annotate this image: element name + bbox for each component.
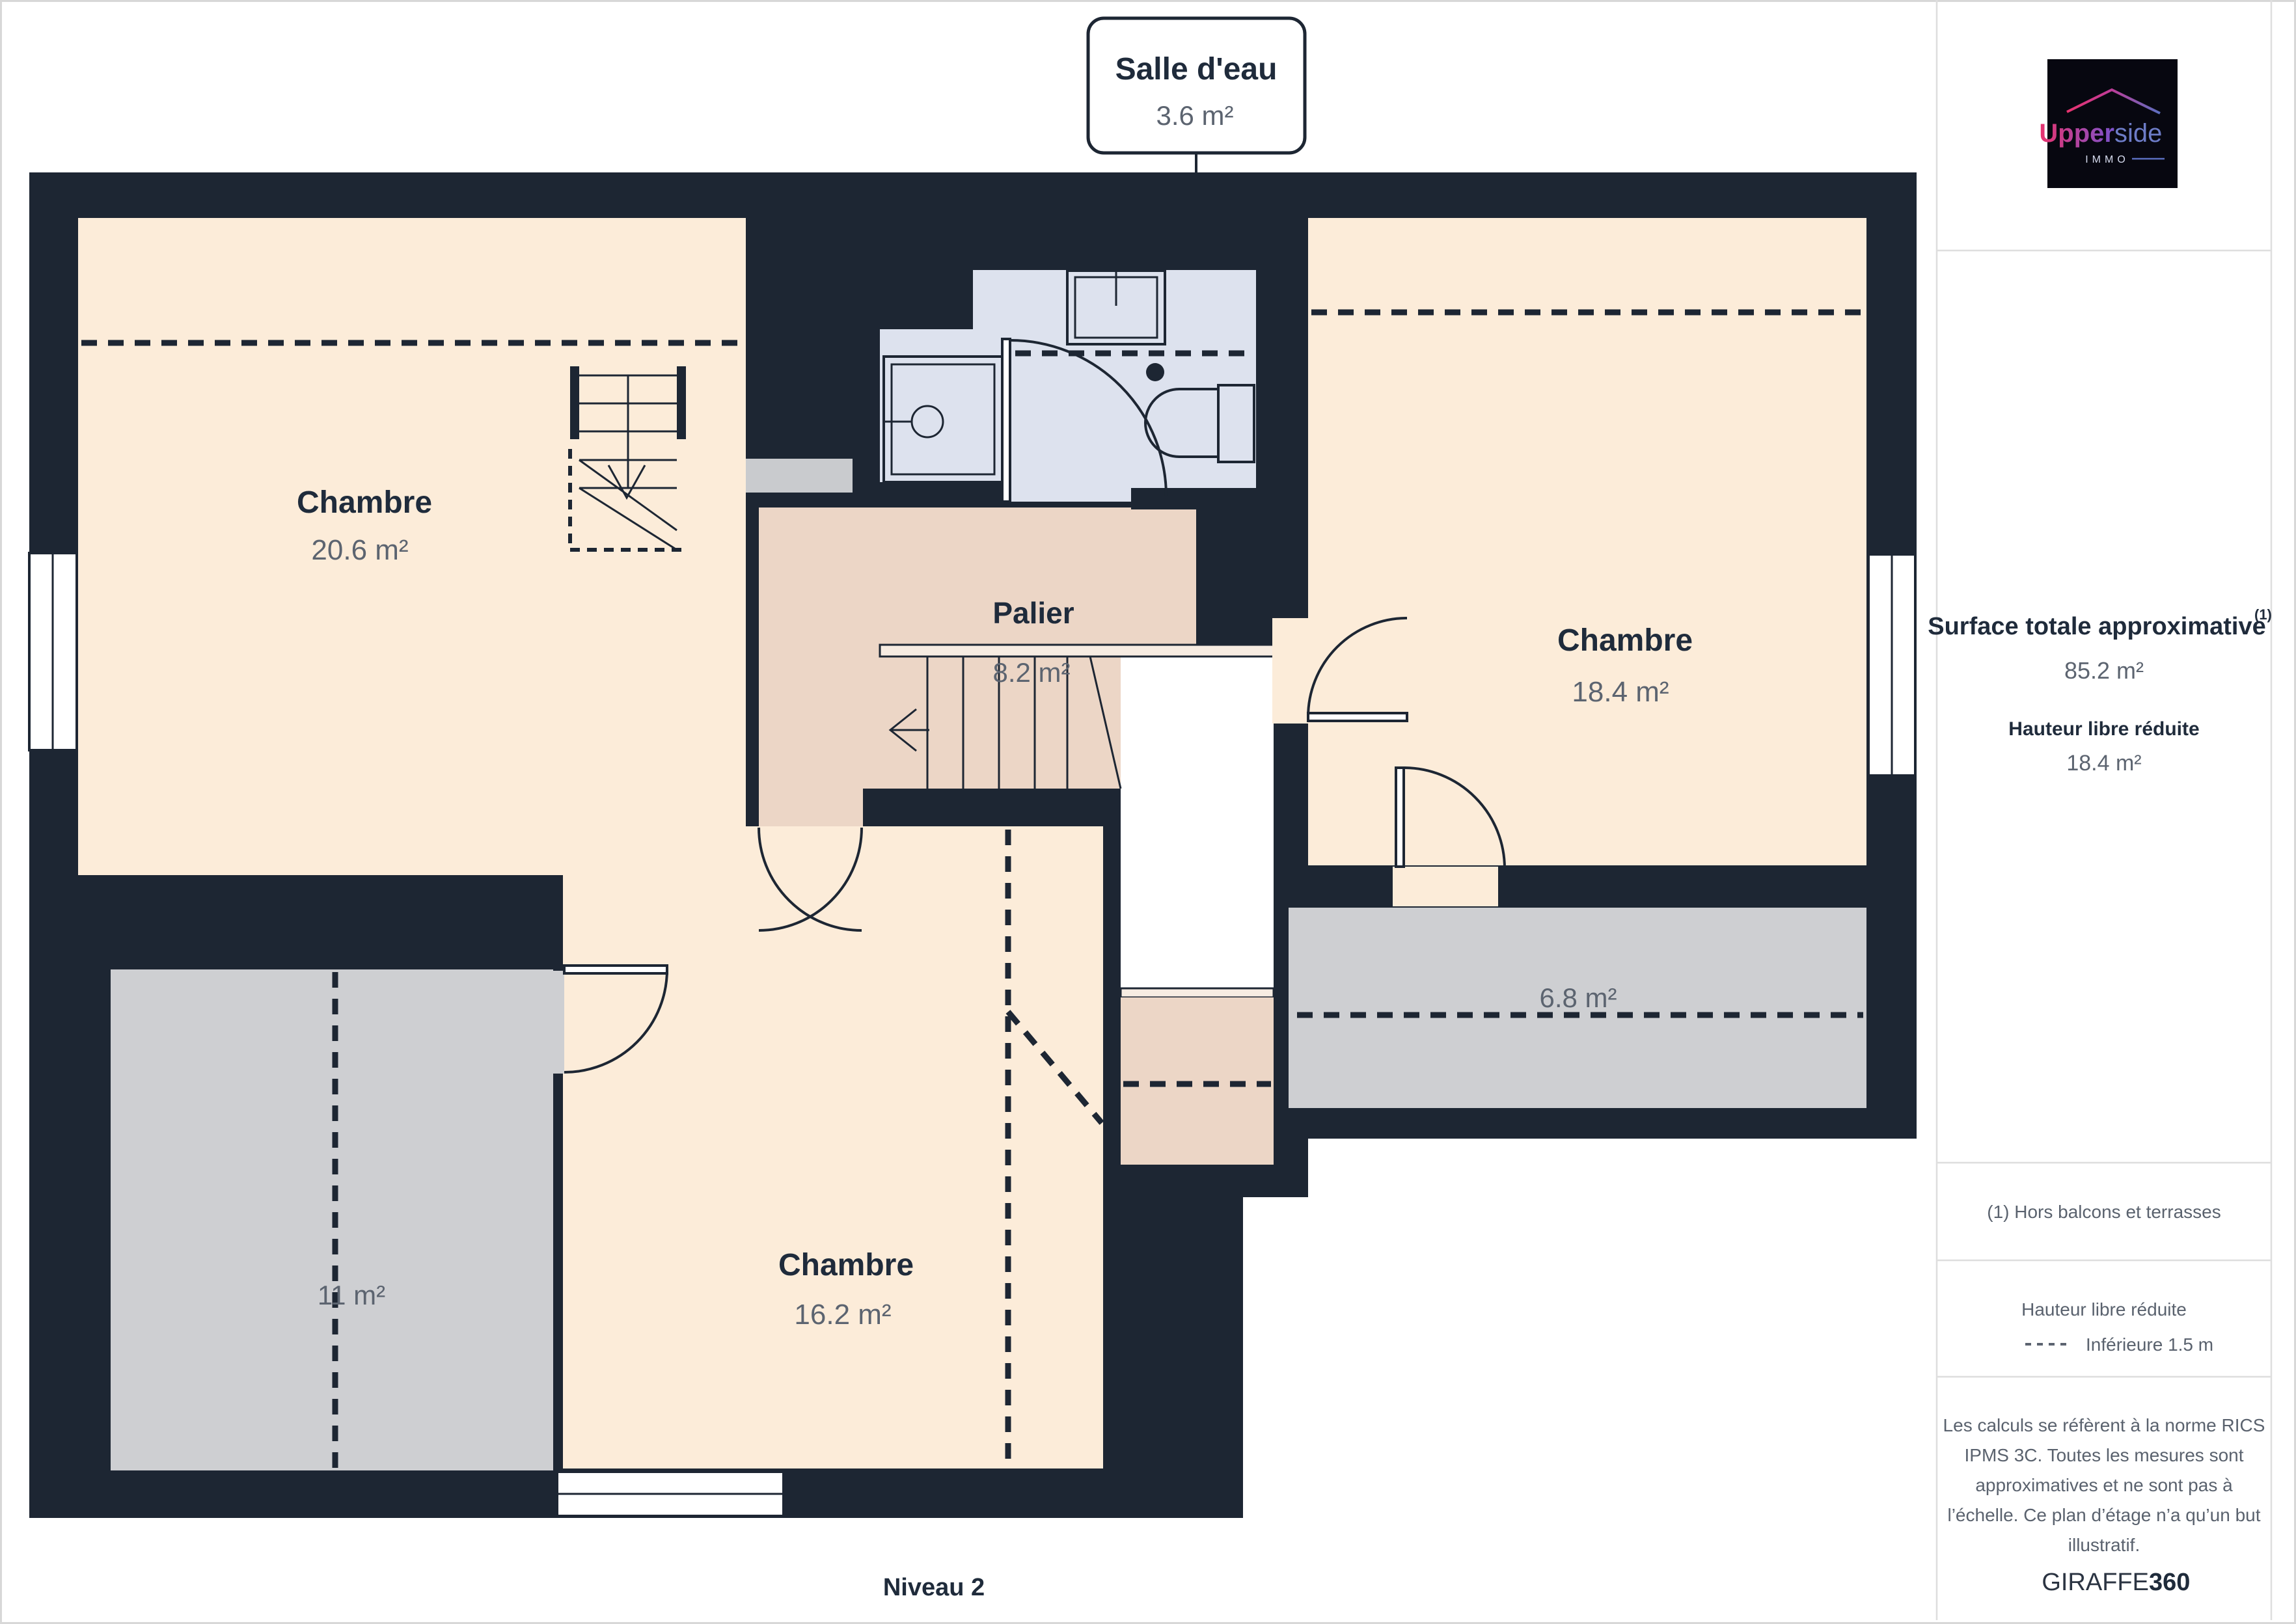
reduced-height-title: Hauteur libre réduite: [2008, 718, 2199, 740]
surface-total-title: Surface totale approximative: [1928, 613, 2266, 640]
room-reduit-11: [111, 969, 553, 1470]
disclaimer-line: illustratif.: [2068, 1535, 2140, 1555]
corridor-threshold: [1121, 988, 1274, 997]
logo-subtitle: IMMO: [2085, 154, 2129, 165]
window-left: [29, 553, 77, 750]
room-area-chambre-18-4: 18.4 m²: [1572, 676, 1669, 708]
giraffe360-brand-right: 360: [2149, 1569, 2190, 1596]
room-label-palier: Palier: [992, 596, 1074, 630]
surface-total-note-marker: (1): [2254, 606, 2272, 623]
room-callout-salle-deau: Salle d'eau 3.6 m²: [1088, 18, 1305, 174]
logo-brand-light: side: [2114, 119, 2162, 148]
surface-total-value: 85.2 m²: [2064, 657, 2144, 684]
room-chambre-20-6: [78, 218, 746, 875]
room-area-palier: 8.2 m²: [992, 657, 1070, 688]
room-label-chambre-18-4: Chambre: [1557, 623, 1693, 658]
room-area-reduit-6-8: 6.8 m²: [1539, 982, 1617, 1013]
brand-logo: Upper side IMMO: [2039, 59, 2178, 188]
giraffe360-brand-left: GIRAFFE: [2042, 1569, 2149, 1596]
stairwell-void: [1121, 656, 1274, 988]
disclaimer-line: IPMS 3C. Toutes les mesures sont: [1965, 1445, 2244, 1465]
closet-strip: [746, 459, 853, 493]
legend-title: Hauteur libre réduite: [2021, 1299, 2187, 1319]
door-stop-dot: [1146, 363, 1164, 381]
disclaimer-line: approximatives et ne sont pas à: [1975, 1475, 2233, 1495]
room-chambre-16-2: [563, 826, 1103, 1468]
logo-brand-bold: Upper: [2039, 119, 2114, 148]
window-right: [1868, 554, 1915, 776]
level-label: Niveau 2: [883, 1574, 985, 1601]
window-bottom: [557, 1472, 784, 1516]
room-label-chambre-16-2: Chambre: [778, 1248, 914, 1282]
room-area-chambre-20-6: 20.6 m²: [311, 534, 408, 566]
corridor-floor: [1121, 997, 1274, 1165]
disclaimer-line: l’échelle. Ce plan d’étage n’a qu’un but: [1947, 1505, 2260, 1525]
callout-area: 3.6 m²: [1156, 100, 1233, 131]
footnote: (1) Hors balcons et terrasses: [1987, 1202, 2221, 1222]
callout-title: Salle d'eau: [1115, 52, 1278, 87]
room-area-chambre-16-2: 16.2 m²: [794, 1299, 891, 1331]
room-chambre-18-4: [1308, 218, 1866, 865]
floor-plan-page: Chambre 20.6 m² Chambre 18.4 m² Chambre …: [0, 0, 2296, 1624]
floor-plan-canvas: Chambre 20.6 m² Chambre 18.4 m² Chambre …: [0, 0, 2296, 1624]
reduced-height-value: 18.4 m²: [2066, 751, 2141, 776]
room-label-chambre-20-6: Chambre: [297, 485, 432, 520]
disclaimer-line: Les calculs se réfèrent à la norme RICS: [1943, 1415, 2265, 1435]
room-area-reduit-11: 11 m²: [318, 1280, 385, 1310]
legend-item: Inférieure 1.5 m: [2086, 1334, 2213, 1355]
room-salle-deau: [880, 270, 1256, 509]
